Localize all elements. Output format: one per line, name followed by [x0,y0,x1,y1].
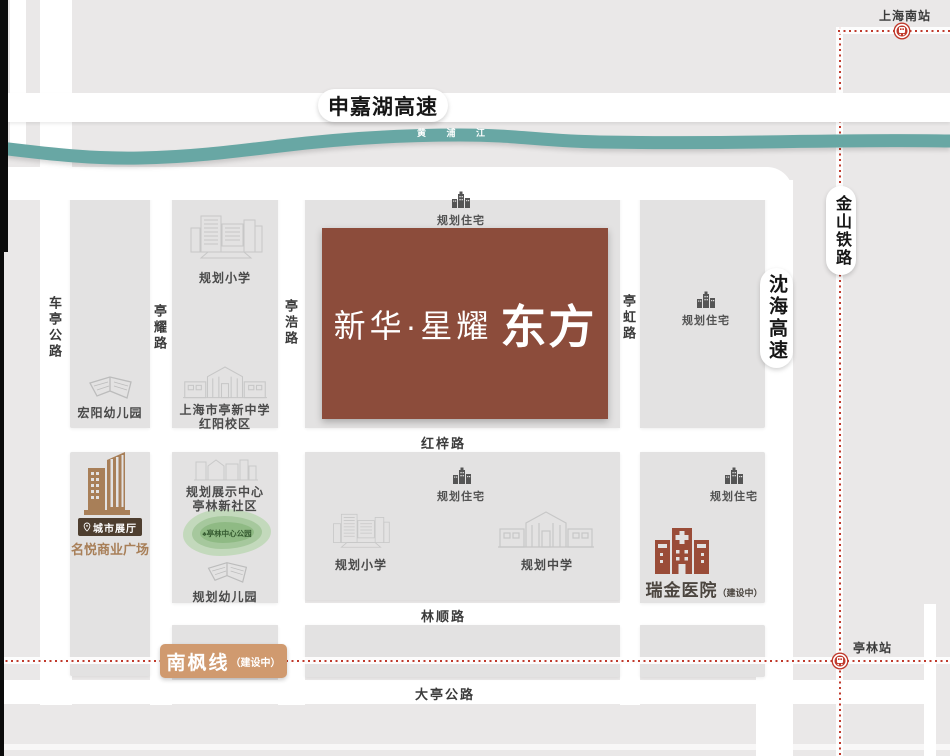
site-name-bold: 东方 [500,291,596,357]
tingxin-middle-school-icon [183,362,267,400]
road-hongzi [40,428,793,452]
planned-residence-icon [696,290,716,310]
ruijin-hospital-caption: 瑞金医院 （建设中） [640,576,768,601]
label-hongzi-road: 红梓路 [421,433,466,452]
planned-primary-school-icon [323,508,399,552]
exhibition-center-icon [194,454,258,482]
planned-residence-icon [452,466,472,486]
planned-residence-label: 规划住宅 [420,212,502,228]
pill-shenhai-text: 沈海高速 [767,274,786,362]
screen-edge-artifact [0,252,4,756]
planned-middle-school-label: 规划中学 [497,556,597,573]
label-linshun-road: 林顺路 [421,606,466,625]
mingyue-plaza-icon [84,450,136,518]
planned-primary-school-label: 规划小学 [172,269,278,286]
pill-jinshan-railway: 金山铁路 [826,186,856,275]
ruijin-hospital-icon [653,526,711,578]
hongyang-kindergarten-label: 宏阳幼儿园 [70,404,150,421]
location-pin-icon [83,522,91,532]
location-map: 黄 浦 江 新华·星耀 东方 车亭公路 亭耀路 亭浩路 亭虹路 红梓路 林顺路 … [0,0,950,756]
site-name-light: 新华·星耀 [334,301,493,347]
city-exhibition-hall-banner: 城市展厅 [78,518,142,536]
label-tinghong-road: 亭虹路 [622,294,635,342]
site-parcel: 新华·星耀 东方 [322,228,608,419]
road-linshun [150,603,793,625]
mingyue-plaza-label: 名悦商业广场 [64,539,156,558]
planned-residence-label: 规划住宅 [420,488,502,504]
label-cheting-highway: 车亭公路 [48,296,61,360]
city-block [305,625,620,677]
label-dating-highway: 大亭公路 [415,684,475,703]
label-tingyao-road: 亭耀路 [153,304,166,352]
planned-residence-icon [724,466,744,486]
city-exhibition-hall-label: 城市展厅 [93,520,137,535]
planned-kindergarten-label: 规划幼儿园 [172,588,278,605]
pill-shenhai-expressway: 沈海高速 [760,268,793,368]
pill-shenjiahu-text: 申嘉湖高速 [328,91,438,121]
ruijin-hospital-label: 瑞金医院 [645,576,717,601]
nanfeng-line-banner: 南枫线 （建设中） [160,644,287,678]
pill-shenjiahu-expressway: 申嘉湖高速 [318,89,448,122]
label-tinghao-road: 亭浩路 [284,299,297,347]
tinglin-central-park-caption: ♣亭林中心公园 [183,528,271,539]
tinglin-station-icon [831,652,849,670]
planned-kindergarten-icon [203,556,251,586]
shanghai-south-station-icon [893,22,911,40]
exhibition-center-label2: 亭林新社区 [172,497,278,514]
planned-residence-icon [451,190,471,210]
nanfeng-line-name: 南枫线 [166,648,229,675]
planned-residence-label: 规划住宅 [665,312,747,328]
tinglin-central-park-label: 亭林中心公园 [207,529,252,538]
tingxin-middle-school-label2: 红阳校区 [172,415,278,432]
planned-primary-school-label: 规划小学 [311,556,411,573]
planned-middle-school-icon [498,506,594,550]
hongyang-kindergarten-icon [84,370,136,402]
tinglin-station-label: 亭林站 [853,639,892,656]
road-bottom-faint [0,744,950,750]
pill-jinshan-text: 金山铁路 [833,195,849,267]
nanfeng-line-dotted [0,660,950,662]
ruijin-hospital-status: （建设中） [717,586,762,599]
river-label: 黄 浦 江 [417,126,494,139]
screen-edge-artifact [0,0,8,252]
planned-residence-label: 规划住宅 [693,488,775,504]
road-bottom-right-vertical [924,604,936,756]
nanfeng-line-status: （建设中） [231,654,281,669]
city-block [640,625,765,677]
planned-primary-school-icon [188,208,264,264]
